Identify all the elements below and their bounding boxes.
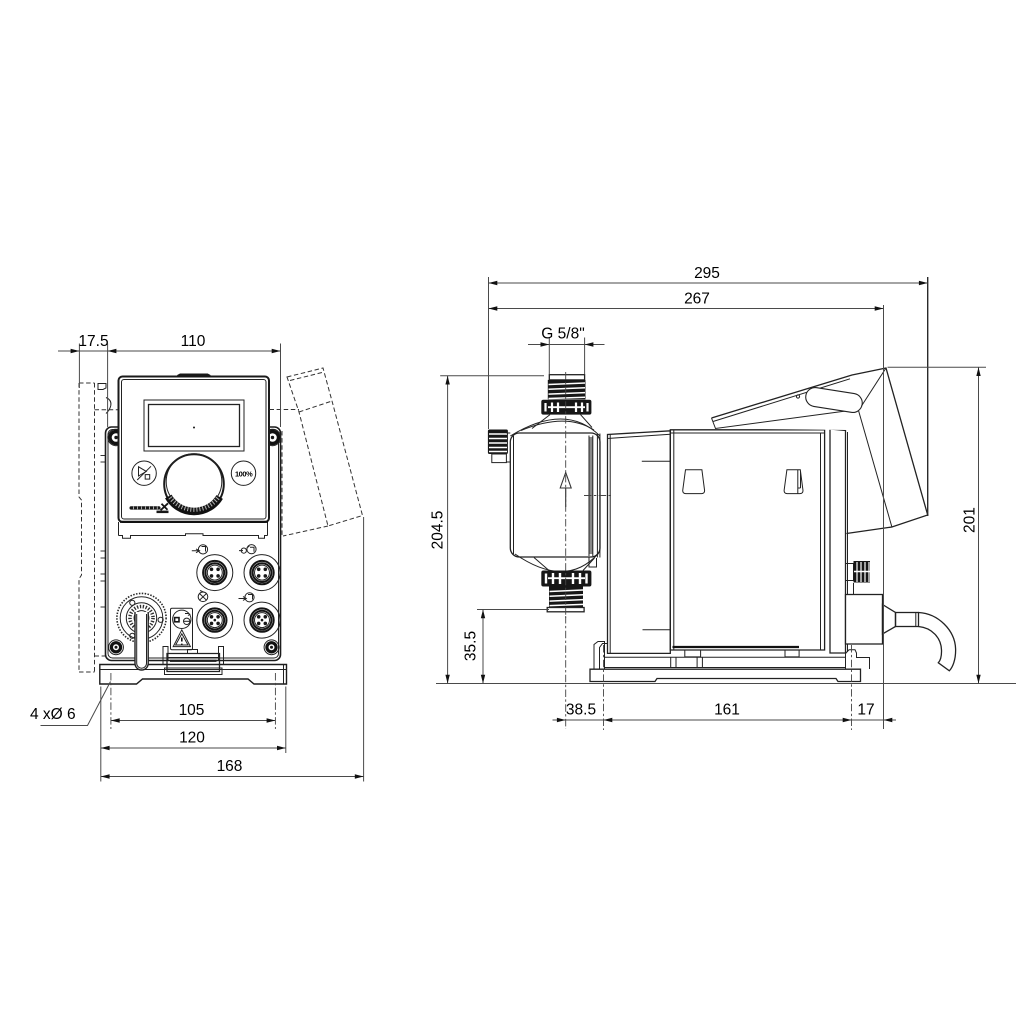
svg-text:295: 295 [694,265,720,282]
svg-text:267: 267 [684,291,710,308]
svg-text:35.5: 35.5 [463,631,480,661]
svg-text:17.5: 17.5 [78,333,108,350]
svg-text:168: 168 [217,758,243,775]
svg-text:201: 201 [962,507,979,533]
svg-text:161: 161 [714,702,740,719]
svg-text:204.5: 204.5 [430,511,447,550]
svg-text:100%: 100% [235,469,253,478]
svg-text:17: 17 [857,702,874,719]
svg-text:110: 110 [181,333,206,350]
svg-text:120: 120 [179,730,205,747]
svg-text:38.5: 38.5 [566,702,596,719]
svg-text:4 xØ 6: 4 xØ 6 [30,706,76,723]
svg-text:105: 105 [179,702,205,719]
svg-text:G 5/8": G 5/8" [541,326,584,343]
